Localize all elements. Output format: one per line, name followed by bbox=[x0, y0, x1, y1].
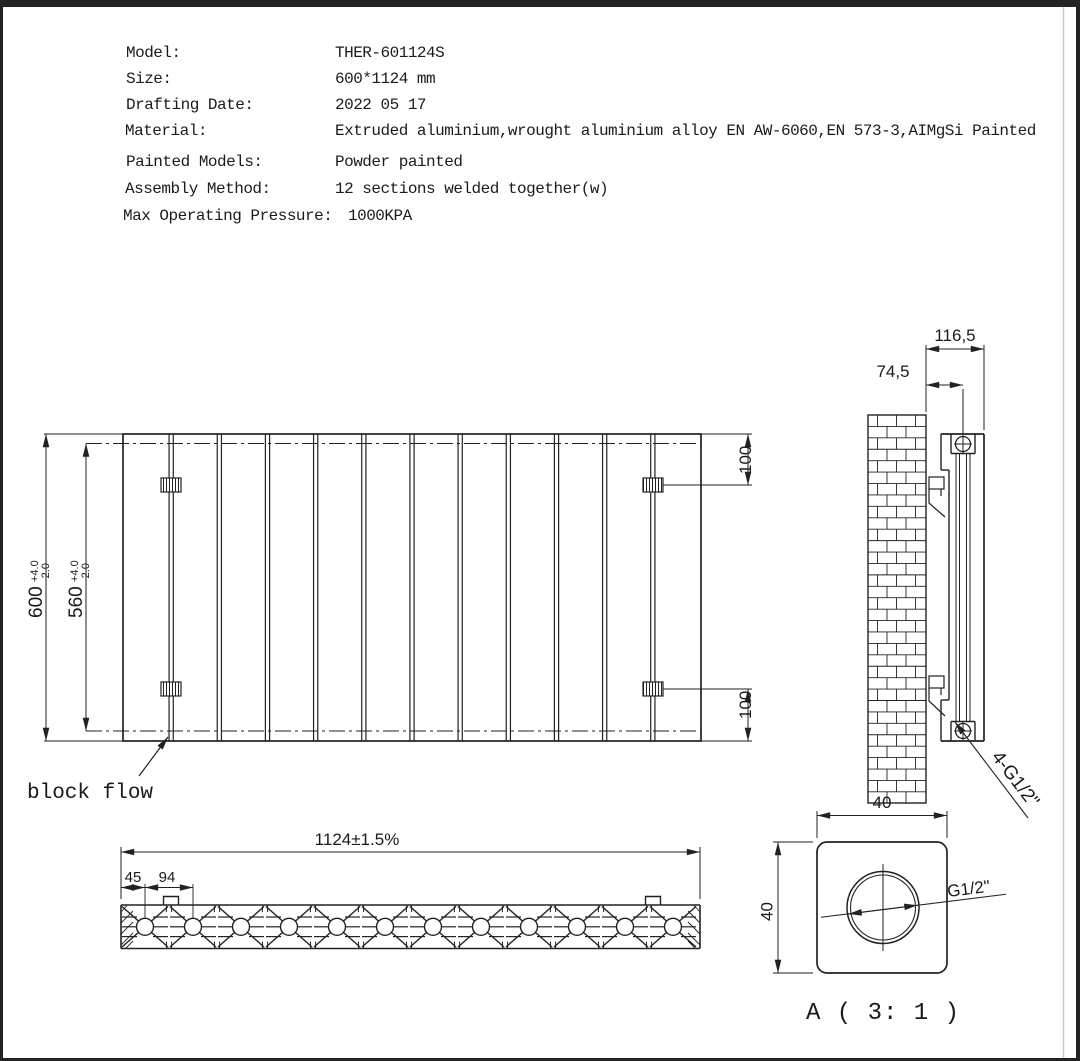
technical-drawing: 600 +4.0 -2.0 560 +4.0 -2.0 100 100 bloc… bbox=[0, 0, 1080, 1061]
radiator-section-lines bbox=[169, 434, 655, 741]
wall-bracket-top bbox=[929, 477, 945, 517]
wall-bracket-bottom bbox=[929, 676, 945, 716]
dim-text-74-5: 74,5 bbox=[876, 362, 909, 381]
bottom-section-view: 1124±1.5% 45 94 bbox=[121, 830, 700, 949]
dim-text-40-left: 40 bbox=[758, 902, 777, 921]
wall-bracket-marks bbox=[161, 478, 663, 696]
brick-wall bbox=[868, 415, 926, 803]
dim-text-100-bottom: 100 bbox=[736, 691, 755, 719]
svg-text:600: 600 bbox=[26, 586, 47, 618]
dim-text-45: 45 bbox=[125, 869, 142, 886]
svg-text:560: 560 bbox=[66, 586, 87, 618]
dim-text-40-top: 40 bbox=[873, 793, 892, 812]
svg-text:-2.0: -2.0 bbox=[40, 563, 52, 582]
detail-view-title: A ( 3: 1 ) bbox=[806, 1000, 960, 1027]
svg-text:-2.0: -2.0 bbox=[80, 563, 92, 582]
dim-text-94: 94 bbox=[159, 869, 176, 886]
dim-text-116-5: 116,5 bbox=[934, 326, 975, 345]
frame-right bbox=[1076, 0, 1080, 1061]
block-flow-leader bbox=[139, 737, 168, 776]
front-view: 600 +4.0 -2.0 560 +4.0 -2.0 100 100 bloc… bbox=[26, 434, 755, 805]
dim-text-600: 600 +4.0 -2.0 bbox=[26, 560, 52, 618]
bracket-tab-right bbox=[646, 897, 661, 906]
block-flow-label: block flow bbox=[27, 782, 153, 805]
section-block-outline bbox=[817, 842, 947, 973]
bracket-tab-left bbox=[164, 897, 179, 906]
dim-text-100-top: 100 bbox=[736, 446, 755, 474]
top-connection-valve bbox=[954, 435, 972, 453]
dim-text-1124: 1124±1.5% bbox=[315, 830, 400, 849]
frame-top bbox=[0, 0, 1080, 7]
dim-text-560: 560 +4.0 -2.0 bbox=[66, 560, 92, 618]
detail-view-a: G1/2" 40 40 A ( 3: 1 ) bbox=[758, 793, 1007, 1027]
frame-left bbox=[0, 0, 3, 1061]
section-profiles bbox=[121, 905, 700, 949]
drawing-sheet: Model: THER-601124S Size: 600*1124 mm Dr… bbox=[0, 0, 1080, 1061]
radiator-side-profile bbox=[941, 434, 984, 741]
radiator-front-outline bbox=[123, 434, 701, 741]
side-view: 116,5 74,5 4-G1/2" bbox=[868, 326, 1043, 818]
